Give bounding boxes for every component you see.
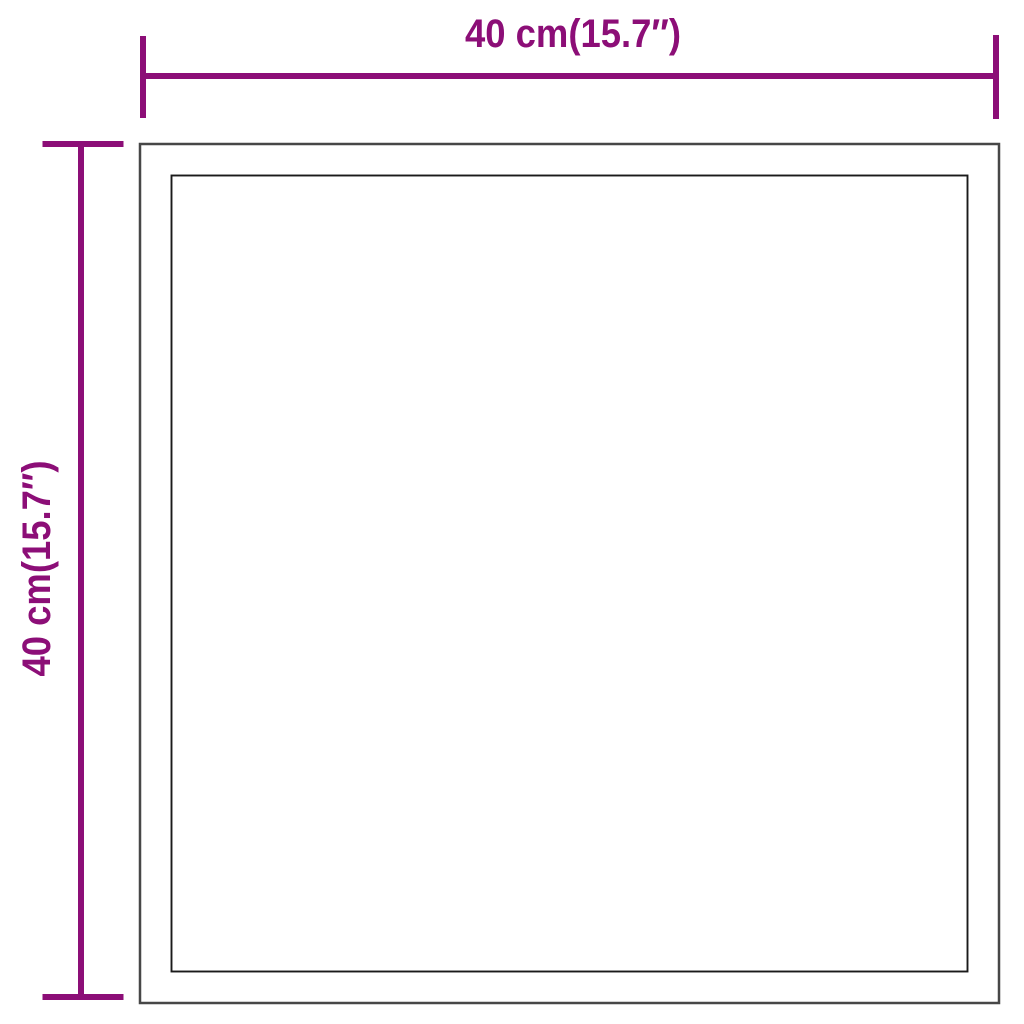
svg-text:40 cm(15.7″): 40 cm(15.7″) bbox=[465, 12, 681, 56]
svg-text:40 cm(15.7″): 40 cm(15.7″) bbox=[15, 461, 59, 677]
